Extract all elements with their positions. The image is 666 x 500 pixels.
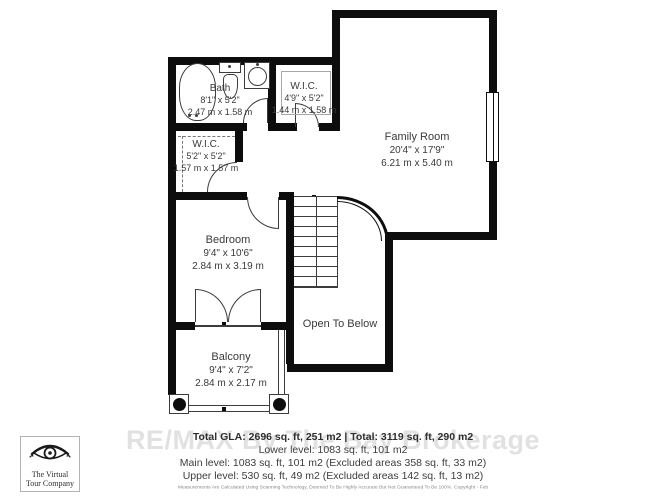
eye-icon (28, 440, 72, 464)
room-dim-m: 2.47 m x 1.58 m (188, 107, 253, 119)
wall-segment (385, 240, 393, 372)
main-level-line: Main level: 1083 sq. ft, 101 m2 (Exclude… (0, 457, 666, 469)
room-dim-m: 1.57 m x 1.57 m (174, 163, 239, 175)
window (486, 92, 499, 162)
lower-level-line: Lower level: 1083 sq. ft, 101 m2 (0, 444, 666, 456)
wall-segment (168, 192, 247, 200)
room-label-bedroom: Bedroom 9'4" x 10'6" 2.84 m x 3.19 m (192, 233, 264, 273)
wall-tick (477, 13, 481, 17)
stair-stringer-line (316, 197, 317, 287)
room-label-wic1: W.I.C. 4'9" x 5'2" 1.44 m x 1.58 m (272, 80, 337, 116)
staircase (294, 196, 338, 288)
room-name: Family Room (381, 130, 453, 144)
sink-faucet-dot (256, 63, 259, 66)
logo-text-line1: The Virtual (21, 470, 79, 479)
wall-segment (489, 10, 497, 92)
measurement-disclaimer: Measurements Are Calculated Using Scanni… (127, 484, 540, 490)
wall-segment (332, 10, 497, 18)
room-label-wic2: W.I.C. 5'2" x 5'2" 1.57 m x 1.57 m (174, 138, 239, 174)
floor-plan-canvas: Bath 8'1" x 5'2" 2.47 m x 1.58 m W.I.C. … (0, 0, 666, 500)
room-dim-ft: 8'1" x 5'2" (188, 95, 253, 107)
wall-segment (168, 123, 247, 131)
balcony-railing (278, 330, 285, 395)
balcony-french-door-right-arc (228, 289, 261, 322)
room-label-family-room: Family Room 20'4" x 17'9" 6.21 m x 5.40 … (381, 130, 453, 170)
curved-stairwell-wall-inner (337, 201, 382, 241)
room-dim-m: 6.21 m x 5.40 m (381, 157, 453, 170)
room-dim-ft: 4'9" x 5'2" (272, 93, 337, 105)
balcony-post (269, 394, 289, 414)
balcony-post (169, 394, 189, 414)
door-threshold-line (195, 325, 261, 327)
wall-segment (287, 364, 393, 372)
room-name: Balcony (195, 350, 267, 364)
room-dim-m: 2.84 m x 2.17 m (195, 377, 267, 390)
wall-segment (489, 162, 497, 240)
toilet-flush-dot (228, 65, 231, 68)
wall-segment (286, 192, 294, 364)
room-dim-m: 1.44 m x 1.58 m (272, 105, 337, 117)
room-name: Bath (188, 82, 253, 95)
balcony-post-circle (173, 398, 186, 411)
upper-level-line: Upper level: 530 sq. ft, 49 m2 (Excluded… (0, 470, 666, 482)
room-name: W.I.C. (272, 80, 337, 93)
wall-tick (287, 255, 291, 259)
room-dim-ft: 9'4" x 10'6" (192, 247, 264, 260)
room-name: Bedroom (192, 233, 264, 247)
room-label-open-to-below: Open To Below (303, 317, 377, 331)
room-label-bath: Bath 8'1" x 5'2" 2.47 m x 1.58 m (188, 82, 253, 118)
balcony-french-door-left-arc (195, 289, 228, 322)
total-gla-line: Total GLA: 2696 sq. ft, 251 m2 | Total: … (0, 431, 666, 443)
virtual-tour-company-logo: The Virtual Tour Company (20, 436, 80, 492)
room-name: W.I.C. (174, 138, 239, 151)
area-summary: Total GLA: 2696 sq. ft, 251 m2 | Total: … (0, 431, 666, 493)
wall-segment (268, 123, 297, 131)
wall-segment (261, 322, 294, 330)
wall-segment (279, 192, 294, 200)
room-label-balcony: Balcony 9'4" x 7'2" 2.84 m x 2.17 m (195, 350, 267, 390)
wall-segment (168, 322, 195, 330)
room-dim-m: 2.84 m x 3.19 m (192, 260, 264, 273)
room-name: Open To Below (303, 317, 377, 331)
closet-rod-dashed-line (178, 136, 235, 137)
balcony-railing (188, 405, 270, 412)
wall-tick (440, 234, 444, 238)
room-dim-ft: 9'4" x 7'2" (195, 364, 267, 377)
wall-segment (168, 330, 176, 395)
room-dim-ft: 5'2" x 5'2" (174, 151, 239, 163)
room-dim-ft: 20'4" x 17'9" (381, 144, 453, 157)
logo-text-line2: Tour Company (21, 479, 79, 488)
wall-tick (172, 253, 176, 257)
window-pane-line (493, 93, 494, 161)
balcony-post-circle (273, 398, 286, 411)
bedroom-door-arc (247, 197, 279, 229)
